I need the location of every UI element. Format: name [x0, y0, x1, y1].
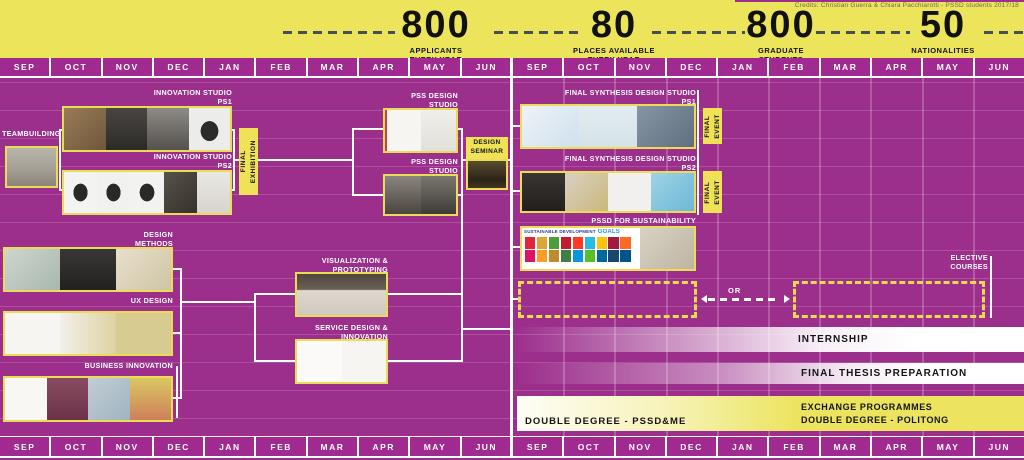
photo-tile: [297, 274, 386, 315]
final-event-1-block: FINAL EVENT: [703, 108, 722, 144]
photo-tile: [64, 172, 97, 213]
sdg-logo-goals: GOALS: [598, 229, 620, 235]
photo-tile: [385, 176, 421, 214]
exchange-band: DOUBLE DEGREE - PSSD&ME EXCHANGE PROGRAM…: [517, 396, 1024, 431]
month-cell: OCT: [51, 437, 102, 456]
final-event-label: FINAL EVENT: [703, 114, 723, 139]
month-cell: DEC: [154, 437, 205, 456]
final-thesis-label: FINAL THESIS PREPARATION: [517, 368, 967, 379]
photo-tile: [130, 172, 163, 213]
month-cell: MAY: [410, 58, 461, 76]
month-cell: MAR: [821, 58, 872, 76]
month-cell: OCT: [564, 437, 615, 456]
month-cell: FEB: [769, 437, 820, 456]
photo-tile: [106, 108, 148, 150]
pss-design-studio-ps1-photos: [383, 108, 458, 153]
teambuilding-photo: [5, 146, 58, 188]
month-cell: DEC: [154, 58, 205, 76]
month-cell: SEP: [0, 437, 51, 456]
month-cell: JUN: [462, 58, 513, 76]
elective-bracket-line: [990, 256, 992, 318]
dashed-arrow-line: [708, 298, 780, 301]
photo-tile: [468, 161, 506, 188]
month-cell: NOV: [616, 58, 667, 76]
final-thesis-band: FINAL THESIS PREPARATION: [517, 363, 1024, 384]
photo-tile: [651, 173, 694, 211]
sdg-goal-tile: [549, 237, 560, 249]
month-cell: MAR: [308, 437, 359, 456]
pssd-for-sustainability-label: PSSD FOR SUSTAINABILITY: [520, 216, 696, 225]
stats-banner: Credits: Christian Guerra & Chiara Pacch…: [0, 0, 1024, 58]
photo-tile: [164, 172, 197, 213]
sdg-logo: SUSTAINABLE DEVELOPMENT GOALS: [524, 229, 638, 236]
sustainability-photo: [640, 228, 694, 269]
internship-label: INTERNSHIP: [517, 334, 869, 345]
month-cell: DEC: [667, 58, 718, 76]
connector: [388, 360, 461, 362]
stat-value: 50: [858, 6, 1024, 44]
stat-value: 800: [351, 6, 521, 44]
month-cell: MAR: [821, 437, 872, 456]
month-cell: JUN: [975, 437, 1024, 456]
connector: [180, 268, 182, 399]
service-design-innovation-photos: [295, 339, 388, 384]
connector: [461, 328, 511, 330]
connector: [352, 194, 384, 196]
connector: [254, 293, 256, 362]
photo-tile: [116, 313, 171, 354]
sdg-goal-tile: [537, 250, 548, 262]
double-degree-pssdme-label: DOUBLE DEGREE - PSSD&ME: [525, 416, 686, 427]
or-label: OR: [728, 286, 741, 295]
photo-tile: [197, 172, 230, 213]
month-cell: MAR: [308, 58, 359, 76]
connector: [255, 293, 295, 295]
option-slot-right: [793, 281, 985, 318]
month-cell: APR: [872, 58, 923, 76]
sdg-goal-tile: [537, 237, 548, 249]
final-exhibition-block: FINAL EXHIBITION: [239, 128, 258, 195]
year-divider-line: [510, 58, 513, 456]
innovation-studio-ps1-label: INNOVATION STUDIO PS1: [62, 88, 232, 107]
sdg-goal-tile: [620, 237, 631, 249]
photo-tile: [637, 106, 694, 147]
pss-design-studio-ps2-photos: [383, 174, 458, 216]
stat-caption: NATIONALITIES: [858, 46, 1024, 55]
month-cell: JAN: [205, 437, 256, 456]
connector: [176, 366, 178, 418]
month-cell: APR: [359, 437, 410, 456]
final-synthesis-ps2-photos: [520, 171, 696, 213]
photo-tile: [147, 108, 189, 150]
final-event-2-block: FINAL EVENT: [703, 171, 722, 213]
photo-tile: [88, 378, 130, 420]
visualization-prototyping-photo: [295, 272, 388, 317]
photo-tile: [522, 106, 579, 147]
pssd-timeline-infographic: Credits: Christian Guerra & Chiara Pacch…: [0, 0, 1024, 460]
connector: [352, 128, 354, 196]
month-cell: NOV: [616, 437, 667, 456]
connector: [512, 190, 520, 192]
stat-value: 800: [696, 6, 866, 44]
month-cell: JUN: [462, 437, 513, 456]
photo-tile: [297, 341, 342, 382]
sdg-goal-tile: [608, 237, 619, 249]
photo-tile: [60, 249, 115, 290]
sdg-goal-tile: [608, 250, 619, 262]
photo-tile: [342, 341, 387, 382]
option-slot-left: [518, 281, 697, 318]
photo-tile: [116, 249, 171, 290]
photo-tile: [5, 378, 47, 420]
final-event-label: FINAL EVENT: [703, 180, 723, 205]
month-cell: FEB: [769, 58, 820, 76]
connector: [255, 360, 295, 362]
sdg-goal-tile: [561, 250, 572, 262]
sdg-goal-tile: [597, 237, 608, 249]
stat-graduates: 800 GRADUATE STUDENTS: [696, 6, 866, 64]
photo-tile: [421, 110, 457, 151]
business-innovation-label: BUSINESS INNOVATION: [3, 361, 173, 370]
design-methods-photos: [3, 247, 173, 292]
business-innovation-photos: [3, 376, 173, 422]
photo-tile: [97, 172, 130, 213]
connector: [512, 125, 520, 127]
sdg-goal-tile: [597, 250, 608, 262]
internship-band: INTERNSHIP: [517, 327, 1024, 352]
stat-applicants: 800 APPLICANTS EVERY YEAR: [351, 6, 521, 64]
innovation-studio-ps2-photos: [62, 170, 232, 215]
connector: [697, 90, 699, 215]
month-cell: MAY: [923, 437, 974, 456]
photo-tile: [565, 173, 608, 211]
photo-tile: [385, 110, 421, 151]
divider-line: [0, 456, 1024, 458]
stat-nationalities: 50 NATIONALITIES: [858, 6, 1024, 55]
teambuilding-label: TEAMBUILDING: [2, 129, 58, 138]
sdg-logo-sub: SUSTAINABLE DEVELOPMENT: [524, 229, 596, 234]
final-synthesis-ps2-label: FINAL SYNTHESIS DESIGN STUDIO PS2: [520, 154, 696, 173]
sdg-poster: SUSTAINABLE DEVELOPMENT GOALS: [522, 228, 640, 269]
sdg-goal-tile: [573, 250, 584, 262]
photo-tile: [47, 378, 89, 420]
month-cell: SEP: [513, 437, 564, 456]
month-cell: DEC: [667, 437, 718, 456]
month-cell: MAY: [410, 437, 461, 456]
photo-tile: [608, 173, 651, 211]
design-seminar-photo: [466, 159, 508, 190]
top-edge-strip: [735, 0, 1024, 2]
month-cell: APR: [359, 58, 410, 76]
photo-tile: [60, 313, 115, 354]
photo-tile: [5, 249, 60, 290]
month-cell: NOV: [103, 437, 154, 456]
connector: [181, 301, 255, 303]
month-cell: NOV: [103, 58, 154, 76]
photo-tile: [64, 108, 106, 150]
month-cell: JAN: [205, 58, 256, 76]
sdg-goal-tile: [620, 250, 631, 262]
connector: [59, 129, 61, 191]
month-cell: OCT: [51, 58, 102, 76]
pssd-for-sustainability-photos: SUSTAINABLE DEVELOPMENT GOALS: [520, 226, 696, 271]
sdg-goal-tile: [549, 250, 560, 262]
photo-tile: [522, 173, 565, 211]
innovation-studio-ps2-label: INNOVATION STUDIO PS2: [62, 152, 232, 171]
month-cell: FEB: [256, 58, 307, 76]
month-cell: JUN: [975, 58, 1024, 76]
arrow-left-icon: [701, 295, 707, 303]
photo-tile: [189, 108, 231, 150]
sdg-goal-tile: [585, 250, 596, 262]
month-cell: APR: [872, 437, 923, 456]
month-cell: OCT: [564, 58, 615, 76]
connector: [388, 293, 461, 295]
final-exhibition-label: FINAL EXHIBITION: [239, 140, 259, 183]
sdg-goal-tile: [573, 237, 584, 249]
connector: [258, 159, 353, 161]
sdg-goal-tile: [561, 237, 572, 249]
month-cell: SEP: [0, 58, 51, 76]
design-seminar-block: DESIGN SEMINAR: [466, 137, 508, 159]
sdg-goal-tile: [525, 250, 536, 262]
sdg-grid: [524, 237, 638, 263]
photo-tile: [579, 106, 636, 147]
sdg-goal-tile: [525, 237, 536, 249]
connector: [461, 128, 463, 362]
sdg-goal-tile: [585, 237, 596, 249]
connector: [352, 128, 384, 130]
photo-tile: [7, 148, 56, 186]
month-cell: JAN: [718, 58, 769, 76]
stat-places: 80 PLACES AVAILABLE EVERY YEAR: [529, 6, 699, 64]
stat-value: 80: [529, 6, 699, 44]
ux-design-label: UX DESIGN: [3, 296, 173, 305]
ux-design-photos: [3, 311, 173, 356]
photo-tile: [421, 176, 457, 214]
arrow-right-icon: [784, 295, 790, 303]
photo-tile: [5, 313, 60, 354]
photo-tile: [130, 378, 172, 420]
month-cell: SEP: [513, 58, 564, 76]
month-cell: JAN: [718, 437, 769, 456]
innovation-studio-ps1-photos: [62, 106, 232, 152]
month-cell: FEB: [256, 437, 307, 456]
month-cell: MAY: [923, 58, 974, 76]
connector: [512, 246, 520, 248]
elective-courses-label: ELECTIVE COURSES: [908, 253, 988, 272]
design-methods-label: DESIGN METHODS: [100, 230, 173, 249]
final-synthesis-ps1-photos: [520, 104, 696, 149]
